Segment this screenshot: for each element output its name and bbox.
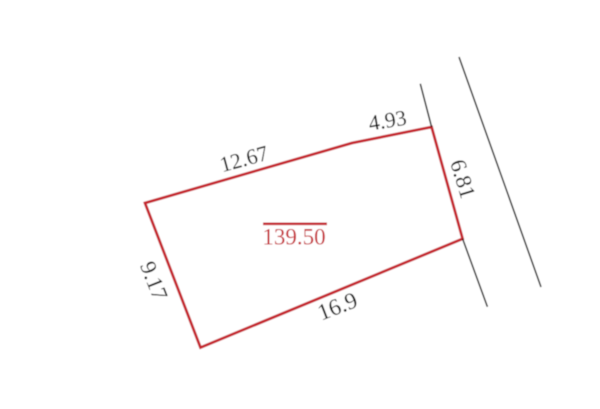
svg-text:139.50: 139.50 [262,225,325,250]
